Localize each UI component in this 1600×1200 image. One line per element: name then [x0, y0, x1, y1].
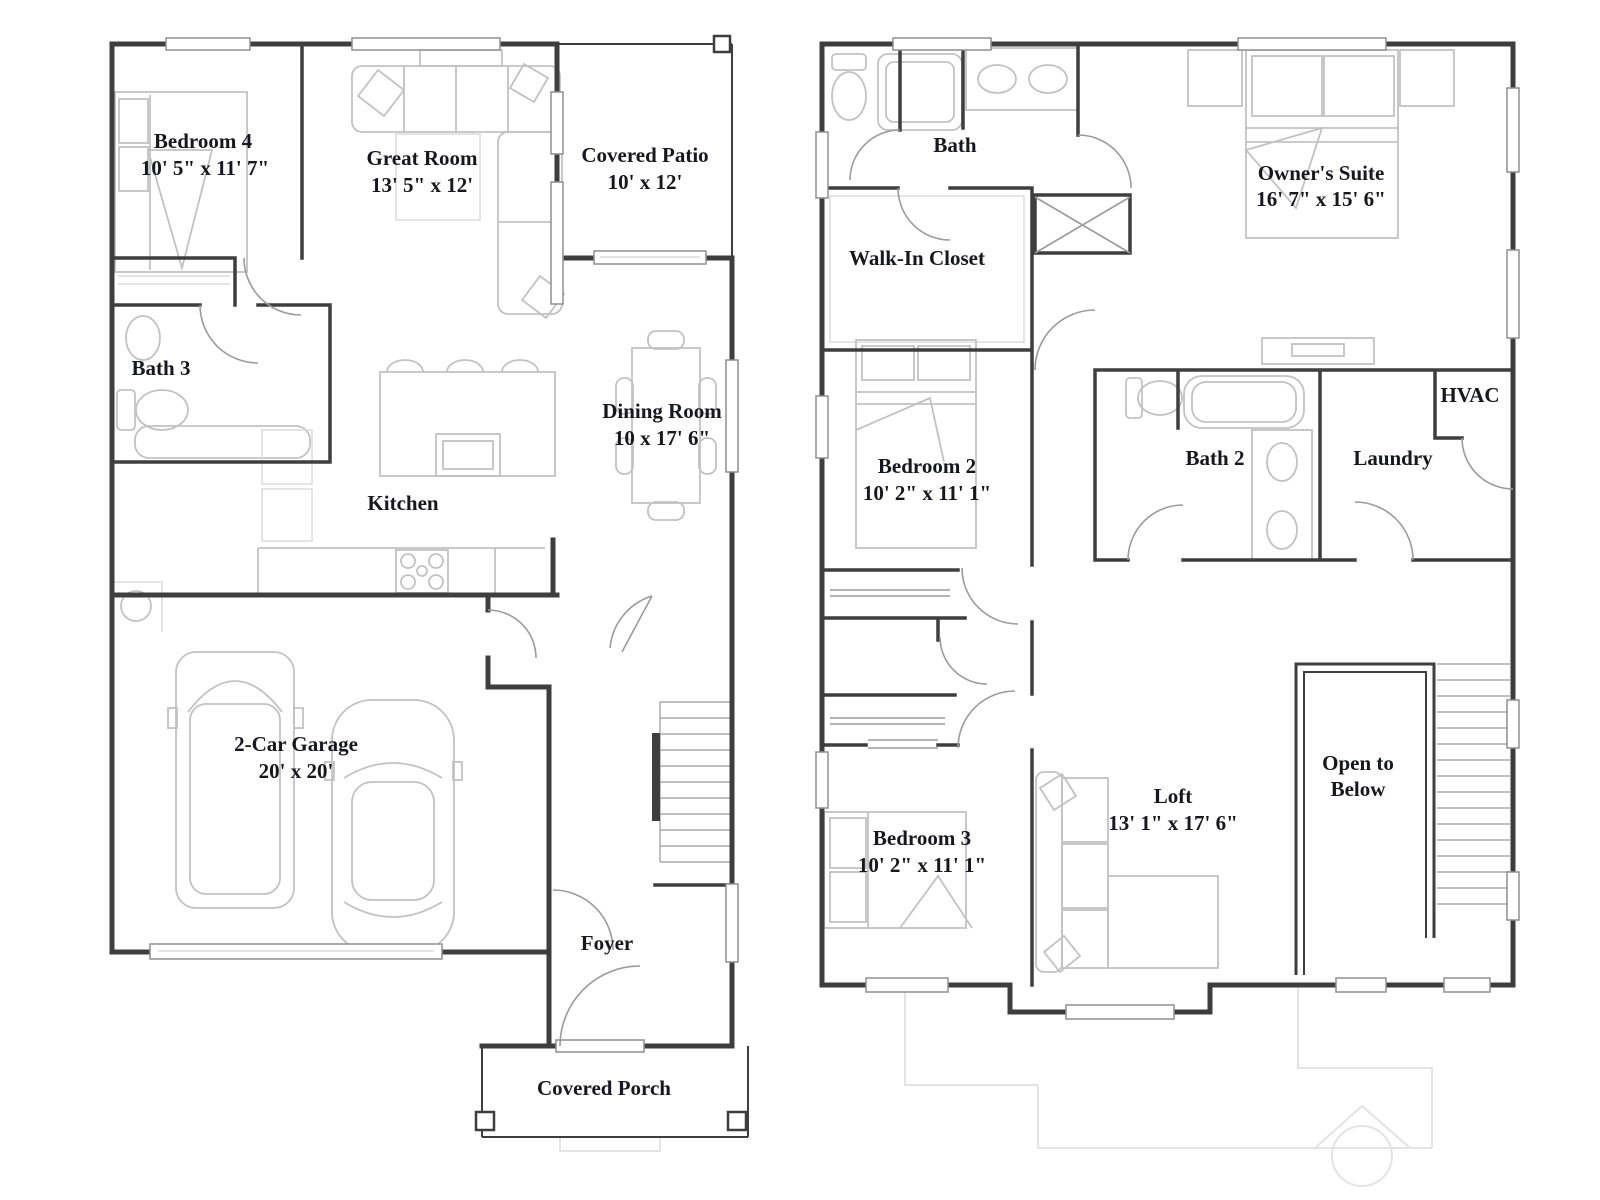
room-dims-bedroom2: 10' 2" x 11' 1" [863, 481, 991, 505]
stove-icon [396, 550, 448, 593]
room-label-open-to-below-line2: Below [1331, 777, 1387, 801]
bed-icon [856, 340, 976, 548]
room-dims-loft: 13' 1" x 17' 6" [1108, 811, 1238, 835]
room-label-foyer: Foyer [581, 931, 633, 955]
room-label-great-room: Great Room [367, 146, 479, 170]
double-vanity-icon [966, 48, 1078, 110]
stairs-icon [652, 702, 732, 862]
bathtub-icon [878, 54, 962, 130]
toilet-icon [117, 390, 188, 430]
water-heater-icon [112, 582, 162, 632]
dresser-icon [1262, 338, 1374, 364]
bathtub-icon [1184, 376, 1304, 428]
room-label-bath3: Bath 3 [132, 356, 191, 380]
room-label-owners-suite: Owner's Suite [1258, 161, 1385, 185]
room-label-covered-patio: Covered Patio [581, 143, 708, 167]
room-label-garage: 2-Car Garage [234, 732, 358, 756]
floor-plan-image: Bedroom 4 10' 5" x 11' 7" Great Room 13'… [0, 0, 1600, 1200]
room-label-bedroom3: Bedroom 3 [873, 826, 971, 850]
closet-rod [118, 276, 230, 284]
room-dims-bedroom3: 10' 2" x 11' 1" [858, 853, 986, 877]
room-label-hvac: HVAC [1440, 383, 1499, 407]
room-dims-owners-suite: 16' 7" x 15' 6" [1256, 187, 1386, 211]
toilet-icon [1126, 378, 1182, 418]
floor-plan-svg: Bedroom 4 10' 5" x 11' 7" Great Room 13'… [0, 0, 1600, 1200]
room-label-covered-porch: Covered Porch [537, 1076, 671, 1100]
porch-step [560, 1137, 660, 1151]
room-label-laundry: Laundry [1353, 446, 1433, 470]
room-label-bedroom4: Bedroom 4 [154, 129, 253, 153]
room-label-bath2: Bath 2 [1186, 446, 1245, 470]
room-label-open-to-below-line1: Open to [1322, 751, 1394, 775]
first-floor-plan: Bedroom 4 10' 5" x 11' 7" Great Room 13'… [112, 36, 748, 1151]
sink-icon [126, 316, 160, 360]
kitchen-island-icon [380, 360, 555, 476]
room-dims-great-room: 13' 5" x 12' [371, 173, 473, 197]
room-label-walk-in-closet: Walk-In Closet [849, 246, 985, 270]
room-label-dining-room: Dining Room [602, 399, 722, 423]
room-dims-bedroom4: 10' 5" x 11' 7" [141, 156, 269, 180]
room-label-loft: Loft [1154, 784, 1193, 808]
room-dims-dining-room: 10 x 17' 6" [614, 426, 710, 450]
double-vanity-icon [1252, 430, 1312, 560]
room-label-bedroom2: Bedroom 2 [878, 454, 976, 478]
room-dims-garage: 20' x 20' [259, 759, 334, 783]
closet-sliding-doors [830, 590, 950, 748]
second-floor-plan: Bath Owner's Suite 16' 7" x 15' 6" Walk-… [816, 38, 1519, 1186]
room-label-kitchen: Kitchen [367, 491, 438, 515]
doors [850, 130, 1513, 748]
stairs-icon [1437, 664, 1510, 904]
toilet-icon [832, 54, 866, 120]
room-label-bath: Bath [933, 133, 977, 157]
bed-icon [115, 92, 247, 272]
room-dims-covered-patio: 10' x 12' [608, 170, 683, 194]
